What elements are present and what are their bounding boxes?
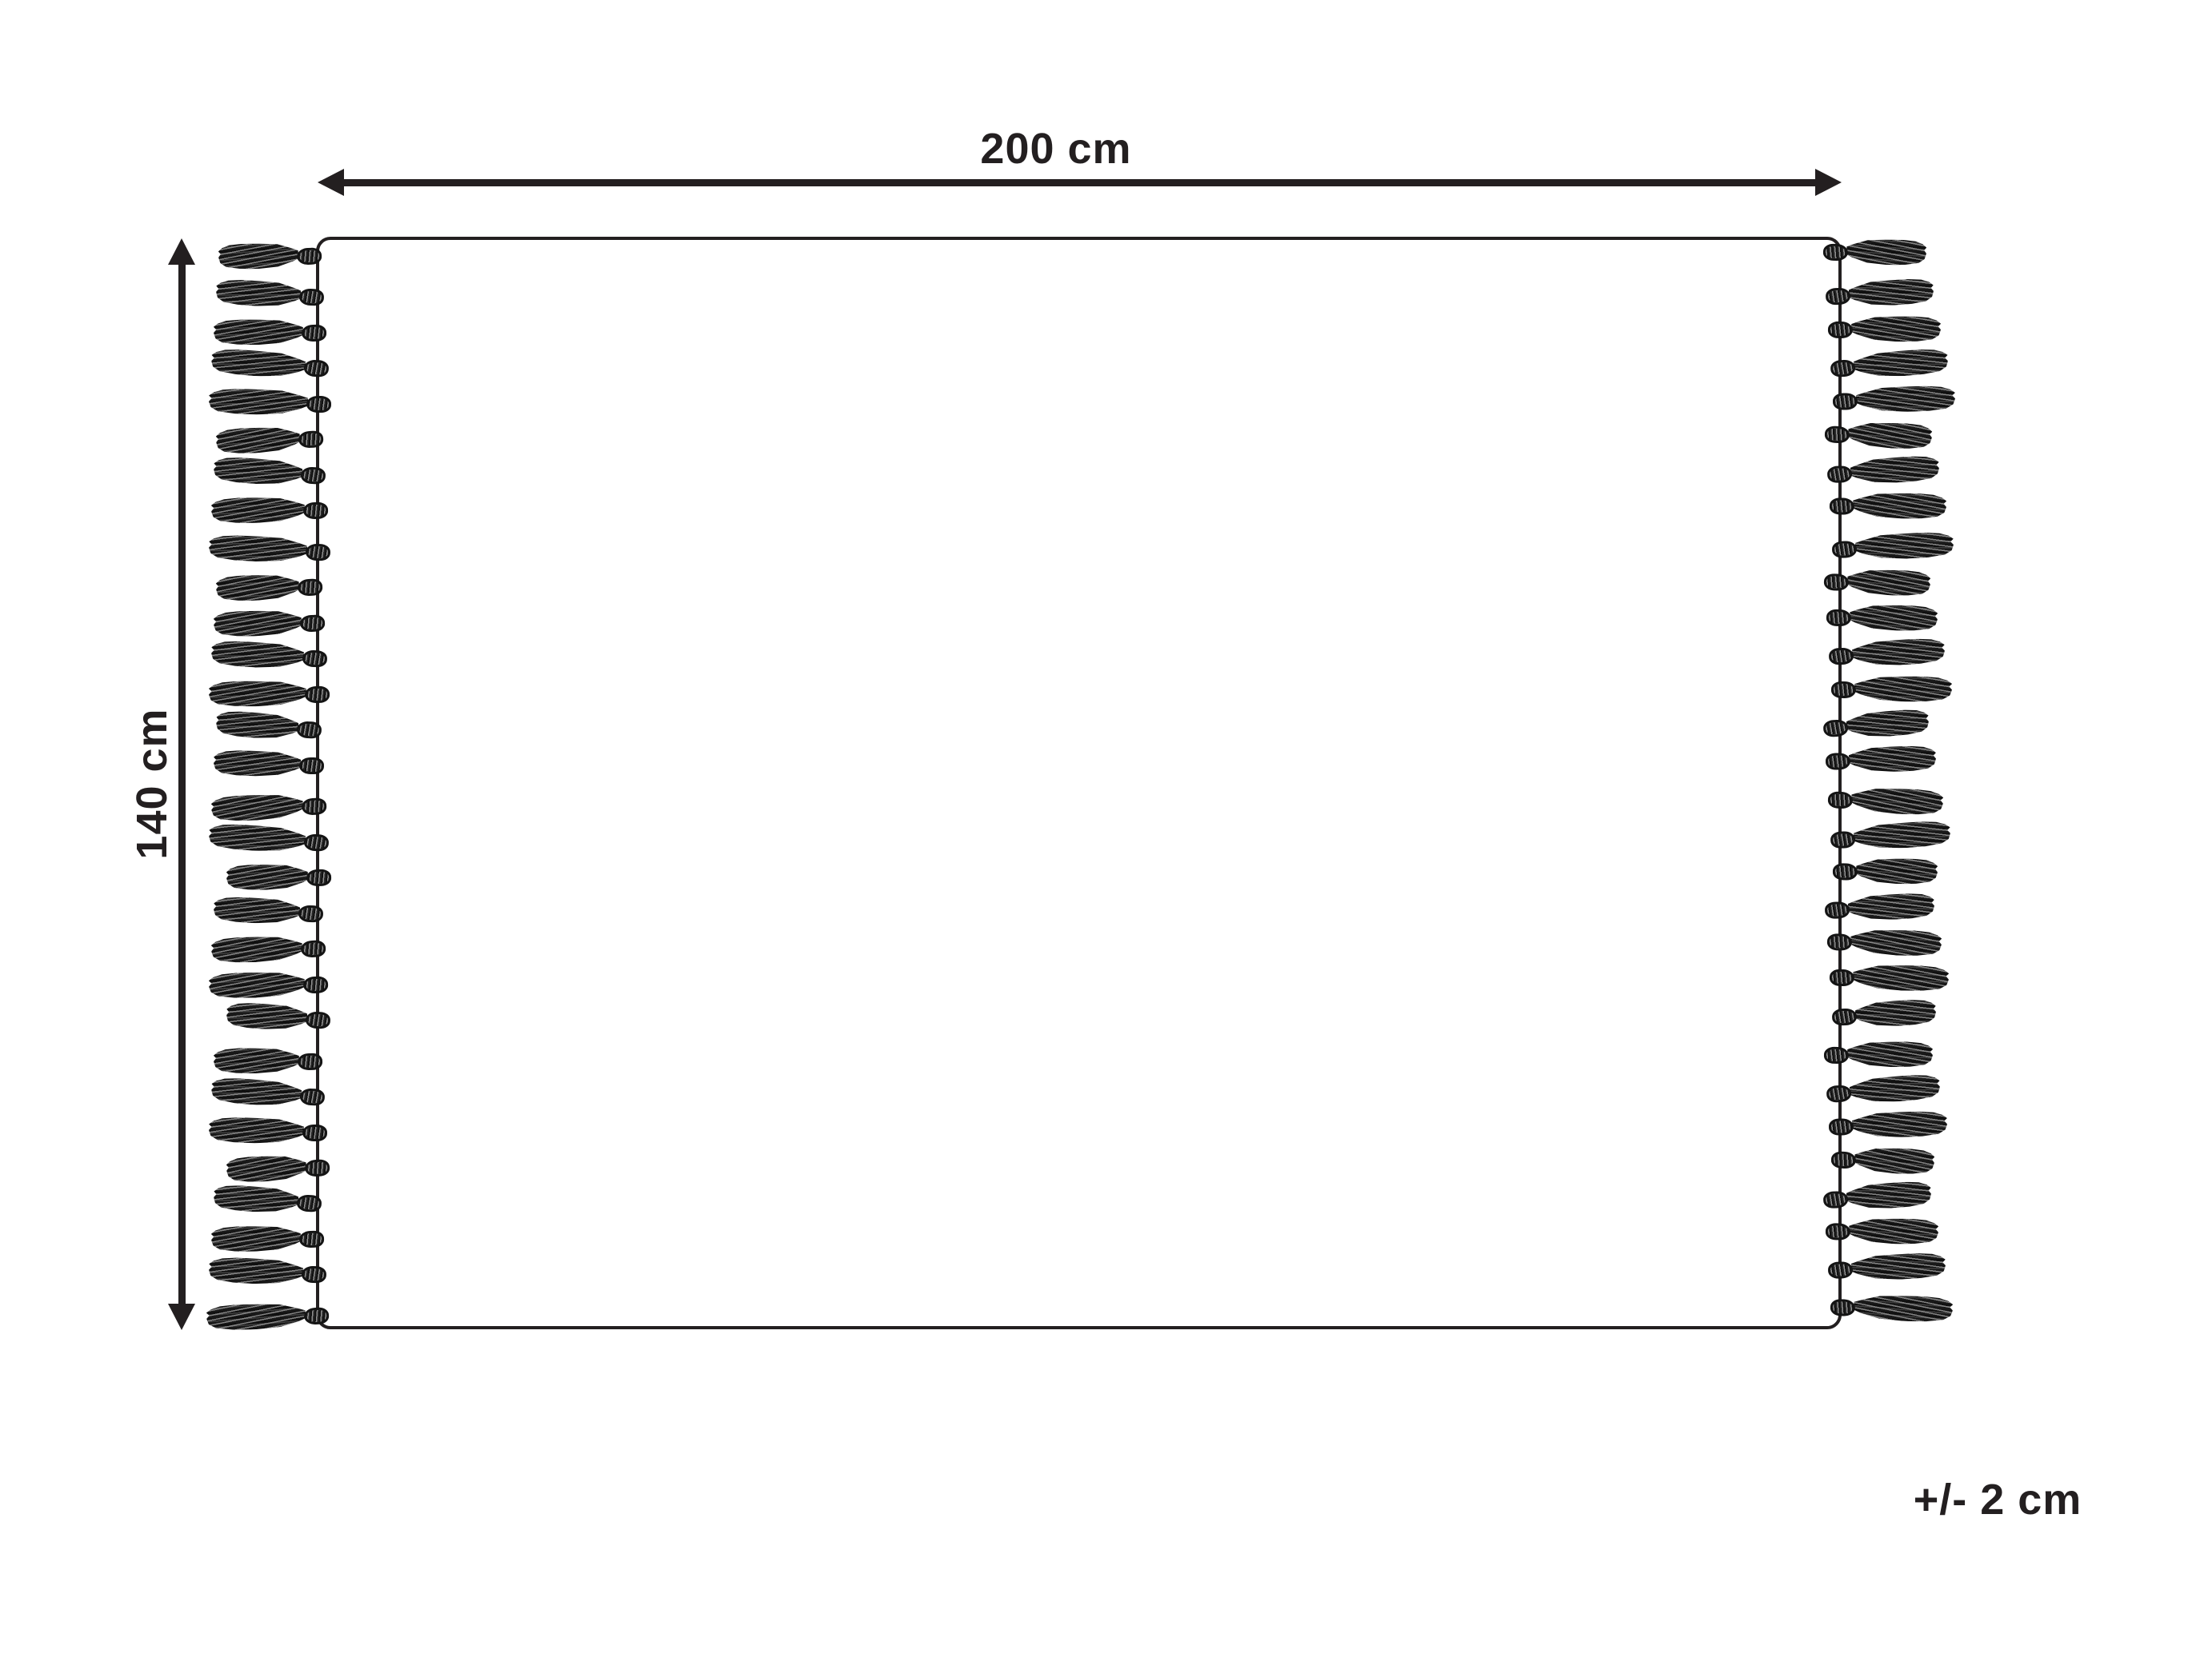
tassel-tie	[1826, 1085, 1852, 1103]
tassel-icon	[212, 318, 323, 346]
tassel-icon	[210, 456, 322, 486]
tassel-icon	[1833, 963, 1944, 993]
tassel-icon	[1837, 386, 1947, 413]
tassel-icon	[1830, 603, 1941, 633]
tassel-tie	[299, 1230, 325, 1248]
tassel-icon	[1830, 1217, 1941, 1246]
arrow-shaft	[178, 258, 186, 1311]
tassel-icon	[1836, 533, 1947, 561]
tassel-tie	[1827, 791, 1853, 809]
tassel-strands	[214, 750, 301, 777]
tassel-strands	[210, 1077, 302, 1108]
tassel-strands	[226, 1002, 308, 1031]
tassel-tie	[1823, 243, 1849, 261]
arrowhead-up-icon	[168, 238, 195, 265]
tassel-strands	[1846, 709, 1930, 738]
tassel-tie	[298, 905, 324, 922]
tassel-tie	[300, 466, 326, 484]
tassel-icon	[1830, 746, 1940, 773]
tassel-strands	[214, 1047, 300, 1074]
tassel-strands	[214, 318, 304, 346]
tassel-tie	[301, 940, 326, 957]
tassel-tie	[303, 502, 329, 520]
tassel-strands	[1853, 1293, 1953, 1323]
tassel-icon	[1826, 238, 1938, 267]
tassel-strands	[1853, 821, 1950, 850]
tassel-icon	[1832, 638, 1943, 668]
tassel-strands	[1849, 746, 1936, 773]
tassel-tie	[303, 833, 329, 851]
tassel-icon	[213, 641, 324, 670]
tassel-icon	[1828, 1041, 1939, 1068]
tassel-strands	[215, 573, 299, 603]
arrowhead-left-icon	[318, 169, 344, 196]
tassel-strands	[213, 457, 302, 486]
tassel-tie	[1830, 1151, 1856, 1169]
tassel-strands	[213, 1185, 298, 1214]
tassel-icon	[217, 389, 327, 415]
tassel-icon	[1826, 1181, 1938, 1211]
width-dimension-label: 200 cm	[816, 124, 1296, 174]
tassel-strands	[1853, 348, 1949, 378]
tassel-tie	[296, 1195, 322, 1213]
tassel-icon	[210, 1077, 321, 1109]
tassel-strands	[216, 279, 302, 308]
tassel-strands	[208, 823, 306, 853]
tassel-icon	[214, 823, 325, 853]
tassel-tie	[297, 247, 322, 265]
tassel-icon	[1833, 1112, 1943, 1138]
tassel-strands	[211, 641, 305, 669]
tassel-icon	[1826, 708, 1938, 739]
tassel-icon	[211, 792, 322, 823]
tassel-icon	[208, 1046, 319, 1073]
tassel-tie	[302, 325, 326, 342]
tassel-tie	[303, 360, 329, 378]
tassel-icon	[1834, 1292, 1945, 1323]
tassel-tie	[1826, 1223, 1851, 1241]
tassel-icon	[214, 1300, 325, 1331]
tassel-strands	[211, 497, 306, 525]
tassel-icon	[1837, 857, 1948, 885]
tassel-strands	[1848, 278, 1934, 307]
tassel-tie	[1831, 681, 1856, 698]
tassel-tie	[1830, 831, 1856, 849]
tassel-tie	[302, 1124, 327, 1141]
tolerance-label: +/- 2 cm	[1758, 1475, 2212, 1524]
tassel-strands	[1846, 568, 1930, 597]
tassel-strands	[1850, 455, 1939, 485]
tassel-tie	[1823, 719, 1849, 737]
tassel-icon	[216, 535, 327, 564]
tassel-tie	[1833, 863, 1858, 881]
tassel-icon	[1834, 491, 1945, 520]
tassel-icon	[1827, 567, 1938, 597]
tassel-tie	[1827, 933, 1853, 951]
tassel-strands	[1854, 999, 1936, 1028]
tassel-icon	[1830, 1074, 1941, 1105]
tassel-icon	[207, 573, 318, 603]
tassel-tie	[1827, 465, 1853, 483]
tassel-icon	[213, 1117, 323, 1143]
tassel-strands	[209, 1257, 304, 1285]
tassel-strands	[209, 680, 307, 707]
tassel-strands	[1851, 638, 1945, 667]
tassel-icon	[207, 242, 318, 271]
tassel-tie	[306, 543, 331, 561]
tassel-icon	[1829, 278, 1940, 308]
tassel-icon	[1834, 1145, 1946, 1176]
tassel-strands	[1852, 964, 1949, 993]
tassel-tie	[1826, 753, 1850, 770]
tassel-strands	[209, 970, 306, 999]
tassel-tie	[1833, 394, 1858, 410]
tassel-tie	[1824, 573, 1850, 591]
tassel-strands	[1855, 532, 1954, 560]
tassel-tie	[306, 1012, 331, 1029]
tassel-tie	[300, 614, 326, 632]
tassel-tie	[299, 289, 325, 306]
tassel-tie	[299, 1088, 325, 1106]
tassel-strands	[209, 534, 308, 562]
tassel-tie	[306, 396, 331, 413]
tassel-icon	[210, 750, 320, 777]
tassel-strands	[1854, 1145, 1935, 1175]
tassel-tie	[1830, 497, 1855, 515]
tassel-icon	[210, 1225, 321, 1253]
tassel-icon	[214, 349, 325, 380]
tassel-tie	[1823, 1191, 1849, 1209]
tassel-icon	[1835, 998, 1946, 1028]
tassel-strands	[1848, 893, 1935, 921]
tassel-tie	[1832, 1008, 1858, 1025]
tassel-strands	[215, 710, 299, 740]
tassel-tie	[1825, 901, 1850, 919]
tassel-tie	[1826, 609, 1852, 627]
tassel-strands	[1847, 420, 1933, 449]
tassel-tie	[1829, 1119, 1854, 1136]
tassel-strands	[1846, 238, 1926, 266]
rug-dimension-diagram: 200 cm 140 cm +/- 2 cm	[0, 0, 2212, 1658]
tassel-icon	[1830, 927, 1942, 957]
tassel-icon	[214, 969, 325, 999]
tassel-tie	[304, 1307, 330, 1324]
tassel-tie	[302, 1266, 327, 1284]
tassel-icon	[217, 863, 328, 892]
tassel-strands	[206, 1301, 306, 1331]
tassel-strands	[214, 609, 302, 637]
tassel-tie	[1826, 288, 1851, 306]
tassel-icon	[1831, 785, 1942, 816]
tassel-strands	[1854, 675, 1953, 702]
tassel-tie	[1828, 321, 1853, 338]
arrow-shaft	[337, 179, 1822, 186]
tassel-tie	[298, 1053, 322, 1070]
tassel-strands	[218, 242, 299, 270]
tassel-tie	[305, 685, 330, 703]
tassel-tie	[1829, 648, 1854, 665]
rug-outline	[316, 237, 1842, 1329]
tassel-icon	[210, 279, 321, 309]
tassel-icon	[214, 1153, 326, 1184]
tassel-strands	[1846, 1181, 1931, 1210]
tassel-strands	[215, 425, 301, 455]
tassel-tie	[303, 976, 329, 993]
tassel-tie	[1832, 541, 1858, 559]
tassel-tie	[1830, 1299, 1856, 1316]
tassel-tie	[1824, 425, 1850, 444]
tassel-icon	[206, 1185, 318, 1215]
arrowhead-down-icon	[168, 1304, 195, 1330]
tassel-icon	[214, 496, 325, 525]
tassel-strands	[209, 389, 308, 415]
tassel-strands	[1852, 1112, 1947, 1138]
tassel-icon	[209, 896, 320, 925]
tassel-icon	[1835, 675, 1946, 702]
tassel-tie	[302, 650, 328, 668]
tassel-icon	[1832, 314, 1943, 342]
tassel-icon	[212, 1257, 323, 1286]
tassel-tie	[299, 757, 324, 774]
tassel-tie	[1828, 1261, 1854, 1279]
tassel-tie	[296, 721, 322, 740]
tassel-icon	[1829, 893, 1940, 921]
tassel-icon	[1834, 348, 1945, 379]
tassel-tie	[1830, 359, 1856, 378]
tassel-icon	[206, 710, 318, 741]
tassel-strands	[209, 1117, 304, 1143]
tassel-strands	[210, 349, 306, 379]
tassel-strands	[1856, 857, 1938, 885]
tassel-icon	[1834, 821, 1945, 851]
tassel-strands	[214, 897, 301, 925]
tassel-strands	[1849, 1217, 1939, 1245]
tassel-icon	[1830, 455, 1942, 485]
height-dimension-label: 140 cm	[127, 544, 177, 1024]
tassel-strands	[210, 793, 304, 823]
tassel-strands	[210, 935, 302, 965]
tassel-strands	[1856, 386, 1955, 413]
tassel-icon	[216, 1002, 327, 1032]
tassel-strands	[1847, 1041, 1934, 1068]
arrowhead-right-icon	[1815, 169, 1842, 196]
tassel-icon	[215, 680, 326, 707]
tassel-strands	[1850, 785, 1944, 816]
tassel-strands	[226, 1154, 307, 1184]
tassel-icon	[208, 425, 319, 456]
tassel-icon	[1832, 1252, 1943, 1281]
tassel-strands	[211, 1225, 302, 1252]
tassel-strands	[1850, 928, 1942, 957]
tassel-strands	[1853, 492, 1947, 520]
tassel-icon	[210, 608, 322, 637]
tassel-strands	[226, 863, 309, 891]
tassel-icon	[210, 934, 322, 965]
tassel-tie	[306, 869, 332, 887]
tassel-icon	[1828, 419, 1939, 450]
tassel-strands	[1851, 1252, 1946, 1280]
tassel-strands	[1849, 604, 1938, 633]
tassel-tie	[1830, 969, 1855, 987]
tassel-tie	[1824, 1047, 1849, 1065]
tassel-strands	[1849, 1074, 1941, 1105]
tassel-strands	[1851, 315, 1942, 342]
